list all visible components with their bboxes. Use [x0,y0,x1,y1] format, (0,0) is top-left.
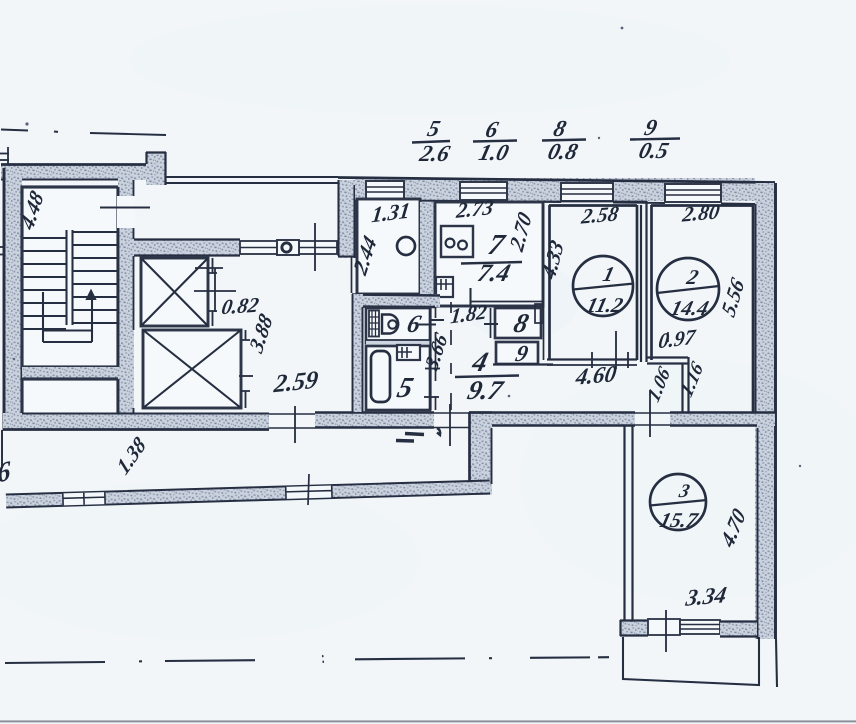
svg-text:3.34: 3.34 [683,582,728,612]
svg-text:2.80: 2.80 [680,199,722,226]
svg-text:0.97: 0.97 [657,324,698,353]
svg-text:2.58: 2.58 [579,201,621,228]
svg-text:4.60: 4.60 [573,361,619,391]
svg-text:6: 6 [0,455,11,489]
svg-text:11.2: 11.2 [584,293,626,317]
svg-text:15.7: 15.7 [657,508,701,532]
svg-text:1.31: 1.31 [370,198,411,228]
svg-text:2.59: 2.59 [271,366,320,399]
svg-text:2.73: 2.73 [454,195,495,223]
svg-text:14.4: 14.4 [668,296,711,320]
